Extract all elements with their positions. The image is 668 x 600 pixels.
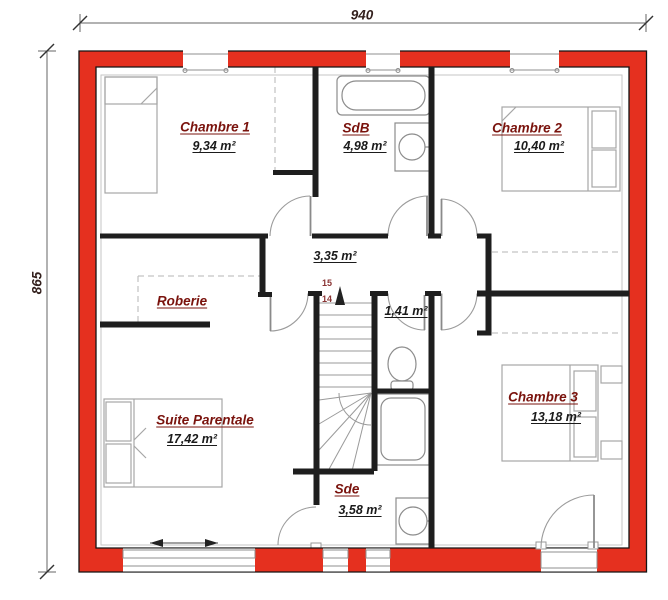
washbasin-icon xyxy=(396,498,434,544)
room-area-sde: 3,58 m² xyxy=(338,503,381,517)
staircase xyxy=(319,286,372,471)
single-bed-icon xyxy=(105,77,157,193)
room-label-suite-parentale: Suite Parentale xyxy=(156,413,254,428)
room-area-chambre-2: 10,40 m² xyxy=(514,139,564,153)
window xyxy=(366,50,400,73)
stair-step-number-upper: 15 xyxy=(322,278,332,288)
room-label-chambre-3: Chambre 3 xyxy=(508,390,578,405)
room-area-sdb: 4,98 m² xyxy=(343,139,386,153)
door-arc xyxy=(441,199,477,236)
stairs-up-arrow-icon xyxy=(335,286,345,305)
door-arc xyxy=(388,196,428,236)
door-arc xyxy=(278,507,321,550)
room-label-sde: Sde xyxy=(335,482,360,497)
room-area-palier: 3,35 m² xyxy=(313,249,356,263)
sliding-window-arrows-icon xyxy=(150,539,218,547)
washbasin-icon xyxy=(395,123,431,171)
room-label-sdb: SdB xyxy=(343,121,370,136)
door-arc xyxy=(270,294,308,332)
room-area-wc: 1,41 m² xyxy=(384,304,427,318)
bathtub-icon xyxy=(337,76,430,115)
window xyxy=(323,549,348,572)
window xyxy=(510,50,559,73)
room-label-chambre-1: Chambre 1 xyxy=(180,120,250,135)
room-label-roberie: Roberie xyxy=(157,294,207,309)
window xyxy=(123,549,255,572)
room-label-chambre-2: Chambre 2 xyxy=(492,121,562,136)
room-area-chambre-3: 13,18 m² xyxy=(531,410,581,424)
window xyxy=(183,50,228,73)
dimension-width-label: 940 xyxy=(351,8,374,23)
room-area-chambre-1: 9,34 m² xyxy=(192,139,235,153)
stair-step-number-lower: 14 xyxy=(322,294,332,304)
toilet-icon xyxy=(388,347,416,390)
floor-plan: 940 865 Chambre 1 9,34 m² SdB 4,98 m² Ch… xyxy=(0,0,668,600)
floor-plan-drawing xyxy=(0,0,668,600)
window xyxy=(366,549,390,572)
door-arc xyxy=(270,196,311,236)
door-arc xyxy=(441,294,477,331)
dimension-height-label: 865 xyxy=(30,272,45,295)
french-door xyxy=(536,495,598,572)
shower-icon xyxy=(377,394,429,465)
room-area-suite-parentale: 17,42 m² xyxy=(167,432,217,446)
